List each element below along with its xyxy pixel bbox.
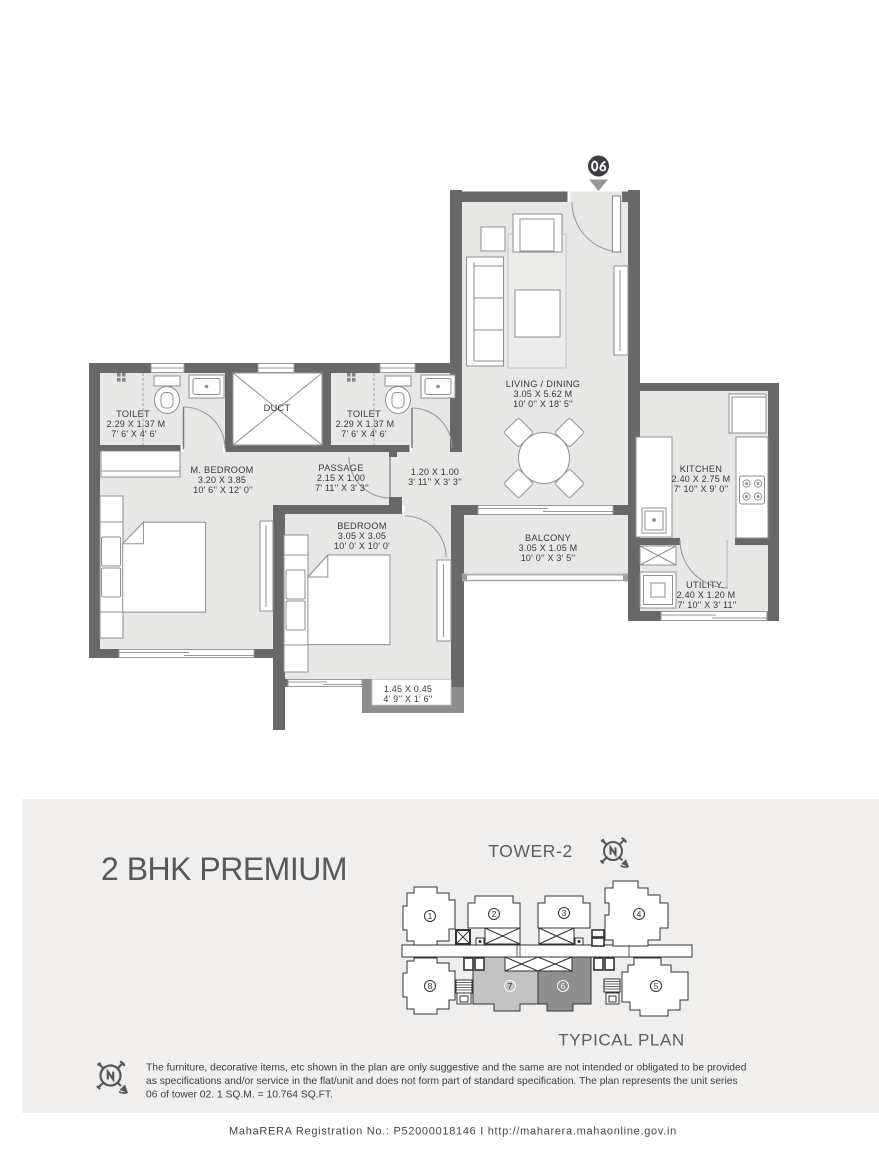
svg-text:MahaRERA Registration No.: P52: MahaRERA Registration No.: P52000018146 … [229, 1126, 677, 1138]
svg-text:10' 6'' X 12' 0'': 10' 6'' X 12' 0'' [193, 485, 253, 495]
svg-text:2.15 X 1.00: 2.15 X 1.00 [317, 473, 365, 483]
svg-text:TYPICAL PLAN: TYPICAL PLAN [558, 1031, 685, 1050]
svg-text:PASSAGE: PASSAGE [318, 463, 363, 473]
svg-text:7' 6' X 4' 6': 7' 6' X 4' 6' [341, 429, 387, 439]
svg-text:10' 0'' X 3' 5'': 10' 0'' X 3' 5'' [521, 553, 576, 563]
svg-text:10' 0'' X 18' 5'': 10' 0'' X 18' 5'' [513, 399, 573, 409]
svg-text:UTILITY.: UTILITY. [686, 580, 724, 590]
svg-text:LIVING / DINING: LIVING / DINING [506, 379, 580, 389]
svg-text:7' 6' X 4' 6': 7' 6' X 4' 6' [111, 429, 157, 439]
svg-text:BEDROOM: BEDROOM [337, 521, 387, 531]
svg-text:2.40 X 1.20 M: 2.40 X 1.20 M [677, 590, 736, 600]
svg-text:2: 2 [492, 909, 497, 919]
svg-text:3: 3 [562, 908, 567, 918]
svg-text:06 of tower 02. 1 SQ.M. = 10.7: 06 of tower 02. 1 SQ.M. = 10.764 SQ.FT. [146, 1090, 333, 1101]
svg-text:3.20 X 3.85: 3.20 X 3.85 [198, 475, 246, 485]
svg-text:10' 0' X 10' 0': 10' 0' X 10' 0' [334, 541, 390, 551]
svg-text:2.29 X 1.37 M: 2.29 X 1.37 M [336, 419, 395, 429]
svg-text:7' 10'' X 3' 11'': 7' 10'' X 3' 11'' [677, 600, 736, 610]
svg-text:3.05 X 3.05: 3.05 X 3.05 [338, 531, 386, 541]
svg-text:5: 5 [654, 981, 659, 991]
svg-text:2.40 X 2.75 M: 2.40 X 2.75 M [672, 474, 731, 484]
svg-text:4: 4 [637, 909, 642, 919]
svg-text:2 BHK PREMIUM: 2 BHK PREMIUM [101, 851, 347, 887]
svg-text:3' 11'' X 3' 3'': 3' 11'' X 3' 3'' [408, 477, 462, 487]
svg-text:KITCHEN: KITCHEN [680, 464, 722, 474]
svg-text:7: 7 [508, 981, 513, 991]
svg-text:7' 11'' X 3' 3'': 7' 11'' X 3' 3'' [315, 483, 369, 493]
svg-text:3.05 X 5.62 M: 3.05 X 5.62 M [514, 389, 573, 399]
svg-text:1.20 X 1.00: 1.20 X 1.00 [411, 467, 459, 477]
svg-text:TOWER-2: TOWER-2 [488, 841, 573, 861]
svg-text:3.05 X 1.05 M: 3.05 X 1.05 M [519, 543, 578, 553]
svg-text:BALCONY: BALCONY [525, 533, 571, 543]
svg-text:4' 9'' X 1' 6'': 4' 9'' X 1' 6'' [383, 694, 432, 704]
svg-text:2.29 X 1.37 M: 2.29 X 1.37 M [107, 419, 166, 429]
svg-text:The furniture, decorative item: The furniture, decorative items, etc sho… [146, 1063, 747, 1074]
svg-text:1: 1 [428, 911, 433, 921]
svg-text:8: 8 [428, 981, 433, 991]
svg-text:1.45 X 0.45: 1.45 X 0.45 [384, 684, 432, 694]
svg-text:7' 10'' X 9' 0'': 7' 10'' X 9' 0'' [674, 484, 729, 494]
svg-text:TOILET: TOILET [116, 409, 150, 419]
svg-text:as specifications and/or servi: as specifications and/or service in the … [146, 1076, 738, 1087]
svg-text:DUCT: DUCT [264, 403, 291, 413]
svg-text:M. BEDROOM: M. BEDROOM [190, 465, 253, 475]
svg-text:6: 6 [561, 981, 566, 991]
svg-text:TOILET: TOILET [347, 409, 381, 419]
